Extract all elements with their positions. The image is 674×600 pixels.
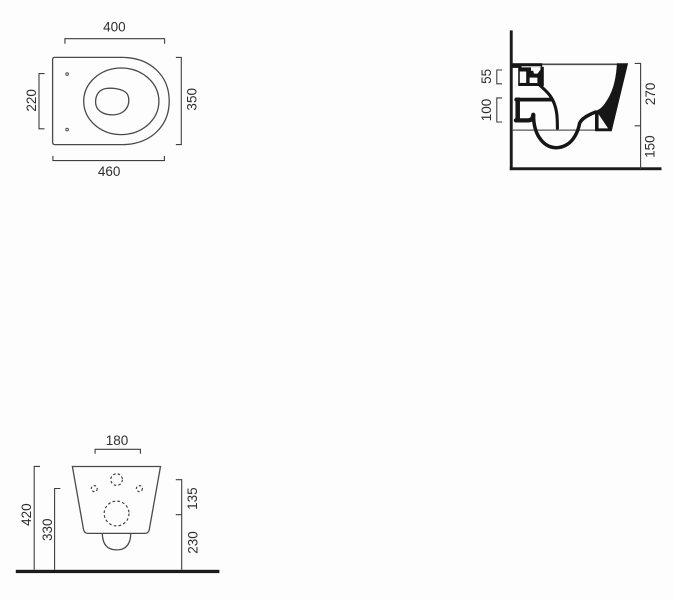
svg-text:230: 230 [186,531,201,554]
svg-text:150: 150 [643,135,658,158]
svg-text:350: 350 [185,88,200,111]
svg-text:400: 400 [103,20,126,35]
svg-text:330: 330 [40,518,55,541]
svg-text:460: 460 [98,164,121,179]
svg-text:270: 270 [643,83,658,106]
svg-text:135: 135 [185,487,200,510]
svg-text:55: 55 [479,69,494,84]
svg-text:420: 420 [19,503,34,526]
svg-text:180: 180 [106,433,129,448]
svg-text:100: 100 [479,99,494,122]
svg-text:220: 220 [24,89,39,112]
